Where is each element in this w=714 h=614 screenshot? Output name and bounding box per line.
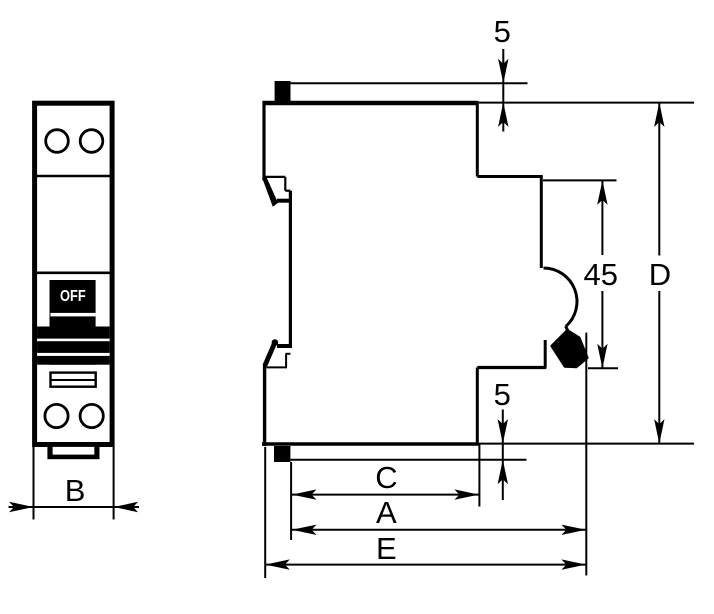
svg-text:B: B: [65, 473, 86, 508]
svg-text:C: C: [375, 460, 397, 495]
svg-text:D: D: [649, 257, 671, 292]
svg-text:OFF: OFF: [60, 288, 86, 305]
svg-text:45: 45: [583, 257, 617, 292]
svg-text:5: 5: [494, 377, 511, 412]
svg-text:5: 5: [494, 14, 511, 49]
svg-text:E: E: [376, 531, 397, 566]
svg-text:A: A: [376, 495, 397, 530]
